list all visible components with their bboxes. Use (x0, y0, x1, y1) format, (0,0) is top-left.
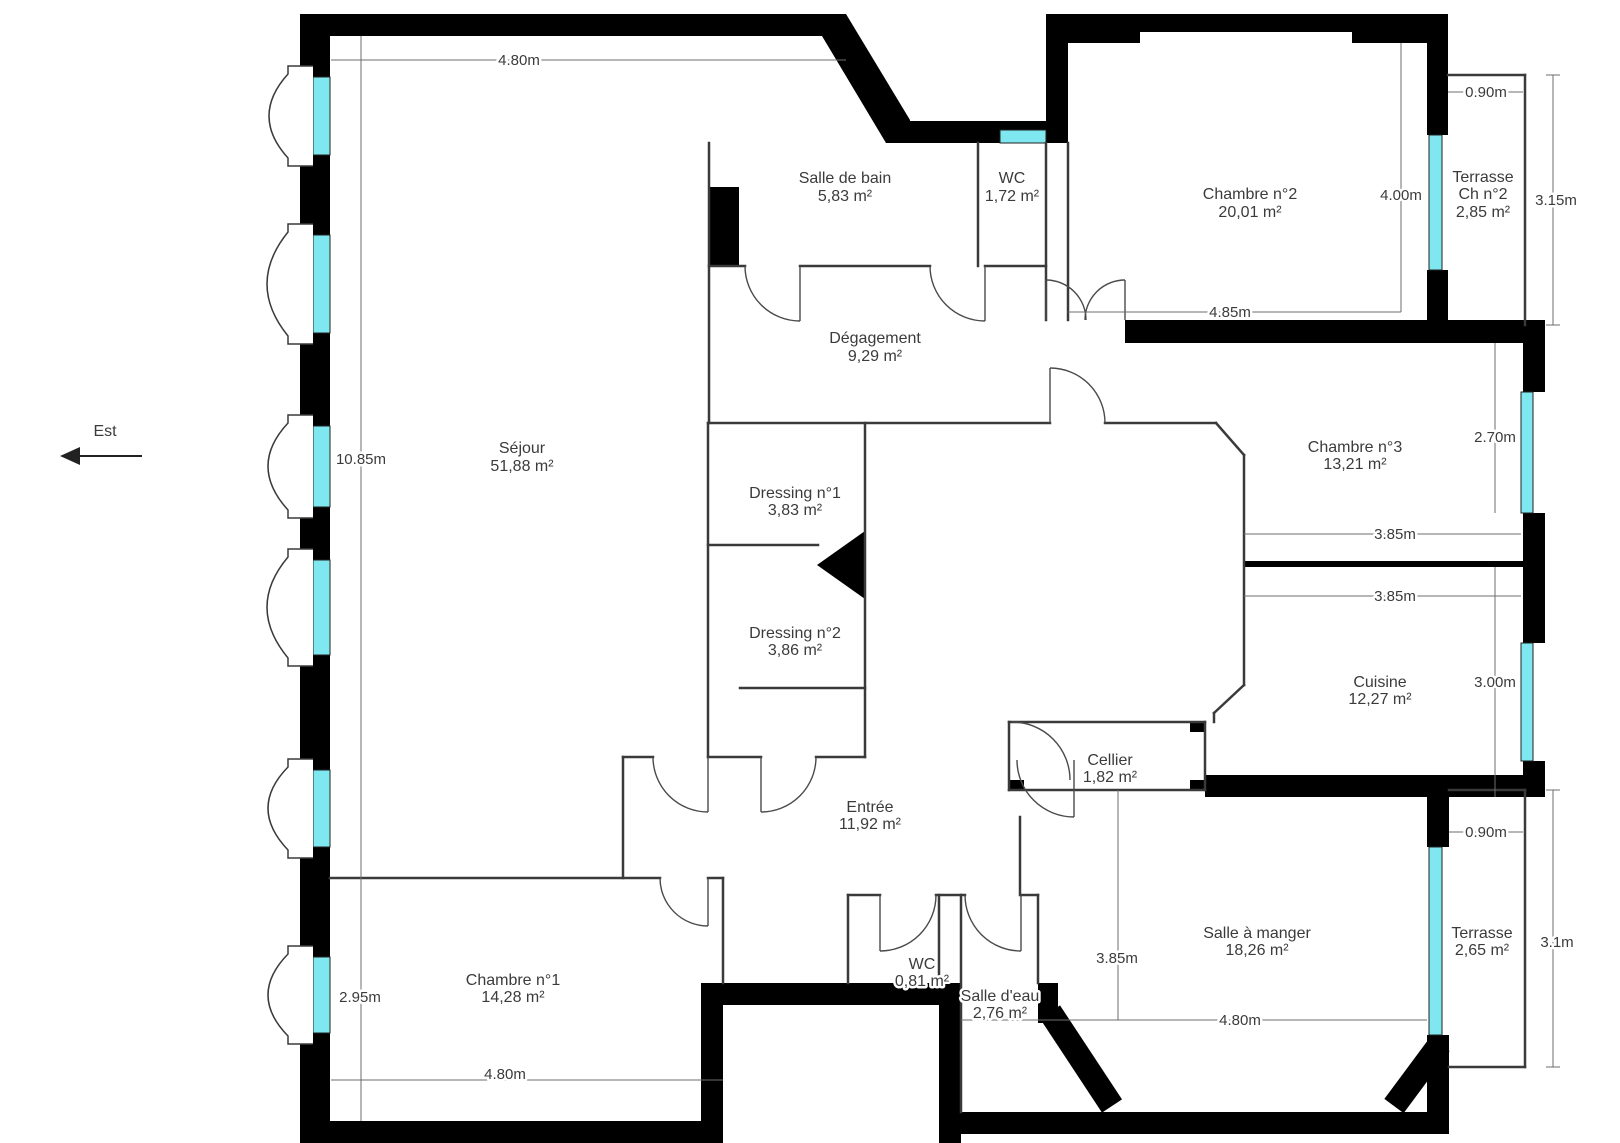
door-arcs (653, 266, 1125, 951)
room-area-salle-a-manger: 18,26 m² (1225, 942, 1289, 959)
room-name-sejour: Séjour (499, 440, 546, 457)
window (313, 560, 330, 655)
room-area-chambre1: 14,28 m² (481, 989, 545, 1006)
dim-cuisine-300: 3.00m (1474, 674, 1516, 691)
room-area-salle-de-bain: 5,83 m² (818, 188, 873, 205)
room-area-degagement: 9,29 m² (848, 348, 903, 365)
room-name-dressing2: Dressing n°2 (749, 625, 841, 642)
window-chambre2 (1429, 135, 1442, 270)
dim-ch3-385: 3.85m (1374, 526, 1416, 543)
room-area-cellier: 1,82 m² (1083, 769, 1138, 786)
dim-sam-480: 4.80m (1219, 1012, 1261, 1029)
dim-cuisine-385: 3.85m (1374, 588, 1416, 605)
window (313, 957, 330, 1033)
room-area-entree: 11,92 m² (839, 816, 902, 833)
room-area-cuisine: 12,27 m² (1348, 691, 1412, 708)
windows (313, 77, 1533, 1035)
room-name-terrasse-ch2: Terrasse (1452, 169, 1513, 186)
room-name-wc-haut: WC (999, 170, 1026, 187)
window (313, 77, 330, 155)
room-name-cellier: Cellier (1087, 752, 1133, 769)
window-wc (1000, 130, 1046, 143)
dim-ter2-315: 3.15m (1535, 192, 1577, 209)
room-area-dressing1: 3,83 m² (768, 502, 823, 519)
window-cuisine (1521, 643, 1533, 761)
floor-plan: Est 4.80m 0.90m 4.00m 3.15m 4.85m 10.85m… (0, 0, 1620, 1143)
room-name-salle-deau: Salle d'eau (961, 988, 1040, 1005)
dimension-lines (331, 36, 1560, 1121)
compass-arrow-head (60, 447, 80, 465)
dim-top-480: 4.80m (498, 52, 540, 69)
room-area-terrasse-bas: 2,65 m² (1455, 942, 1510, 959)
room-area-chambre3: 13,21 m² (1323, 456, 1387, 473)
room-name-dressing1: Dressing n°1 (749, 485, 841, 502)
room-name-chambre2: Chambre n°2 (1203, 186, 1298, 203)
room-name-degagement: Dégagement (829, 330, 921, 347)
dim-tr-090: 0.90m (1465, 84, 1507, 101)
room-name-chambre3: Chambre n°3 (1308, 439, 1403, 456)
dim-ch2-485: 4.85m (1209, 304, 1251, 321)
compass-label: Est (93, 423, 117, 440)
floor-plan-svg: Est 4.80m 0.90m 4.00m 3.15m 4.85m 10.85m… (0, 0, 1620, 1143)
window (313, 235, 330, 333)
window-chambre3 (1521, 392, 1533, 513)
room-area-dressing2: 3,86 m² (768, 642, 823, 659)
window (313, 426, 330, 507)
room-name-cuisine: Cuisine (1353, 674, 1406, 691)
dim-ch1-480: 4.80m (484, 1066, 526, 1083)
dim-sam-385: 3.85m (1096, 950, 1138, 967)
room-name-wc-bas: WC (909, 956, 936, 973)
dim-ch3-270: 2.70m (1474, 429, 1516, 446)
room-area-sejour: 51,88 m² (490, 458, 554, 475)
compass: Est (60, 423, 142, 465)
room-name-terrasse-bas: Terrasse (1451, 925, 1512, 942)
dim-ch1-295: 2.95m (339, 989, 381, 1006)
dim-ter-31: 3.1m (1540, 934, 1573, 951)
window-salle-a-manger (1429, 847, 1442, 1035)
window (313, 770, 330, 847)
room-name-entree: Entrée (846, 799, 893, 816)
wall-wedge (817, 531, 865, 599)
dimension-labels: 4.80m 0.90m 4.00m 3.15m 4.85m 10.85m 2.7… (336, 52, 1577, 1083)
room-name2-terrasse-ch2: Ch n°2 (1458, 186, 1507, 203)
room-area-terrasse-ch2: 2,85 m² (1456, 204, 1511, 221)
room-area-wc-haut: 1,72 m² (985, 188, 1040, 205)
room-name-salle-de-bain: Salle de bain (799, 170, 892, 187)
room-area-chambre2: 20,01 m² (1218, 204, 1282, 221)
dim-br-090: 0.90m (1465, 824, 1507, 841)
room-name-salle-a-manger: Salle à manger (1203, 925, 1311, 942)
dim-ch2-400: 4.00m (1380, 187, 1422, 204)
room-area-salle-deau: 2,76 m² (973, 1005, 1028, 1022)
room-area-wc-bas: 0,81 m² (895, 973, 950, 990)
room-name-chambre1: Chambre n°1 (466, 972, 561, 989)
dim-sejour-1085: 10.85m (336, 451, 386, 468)
